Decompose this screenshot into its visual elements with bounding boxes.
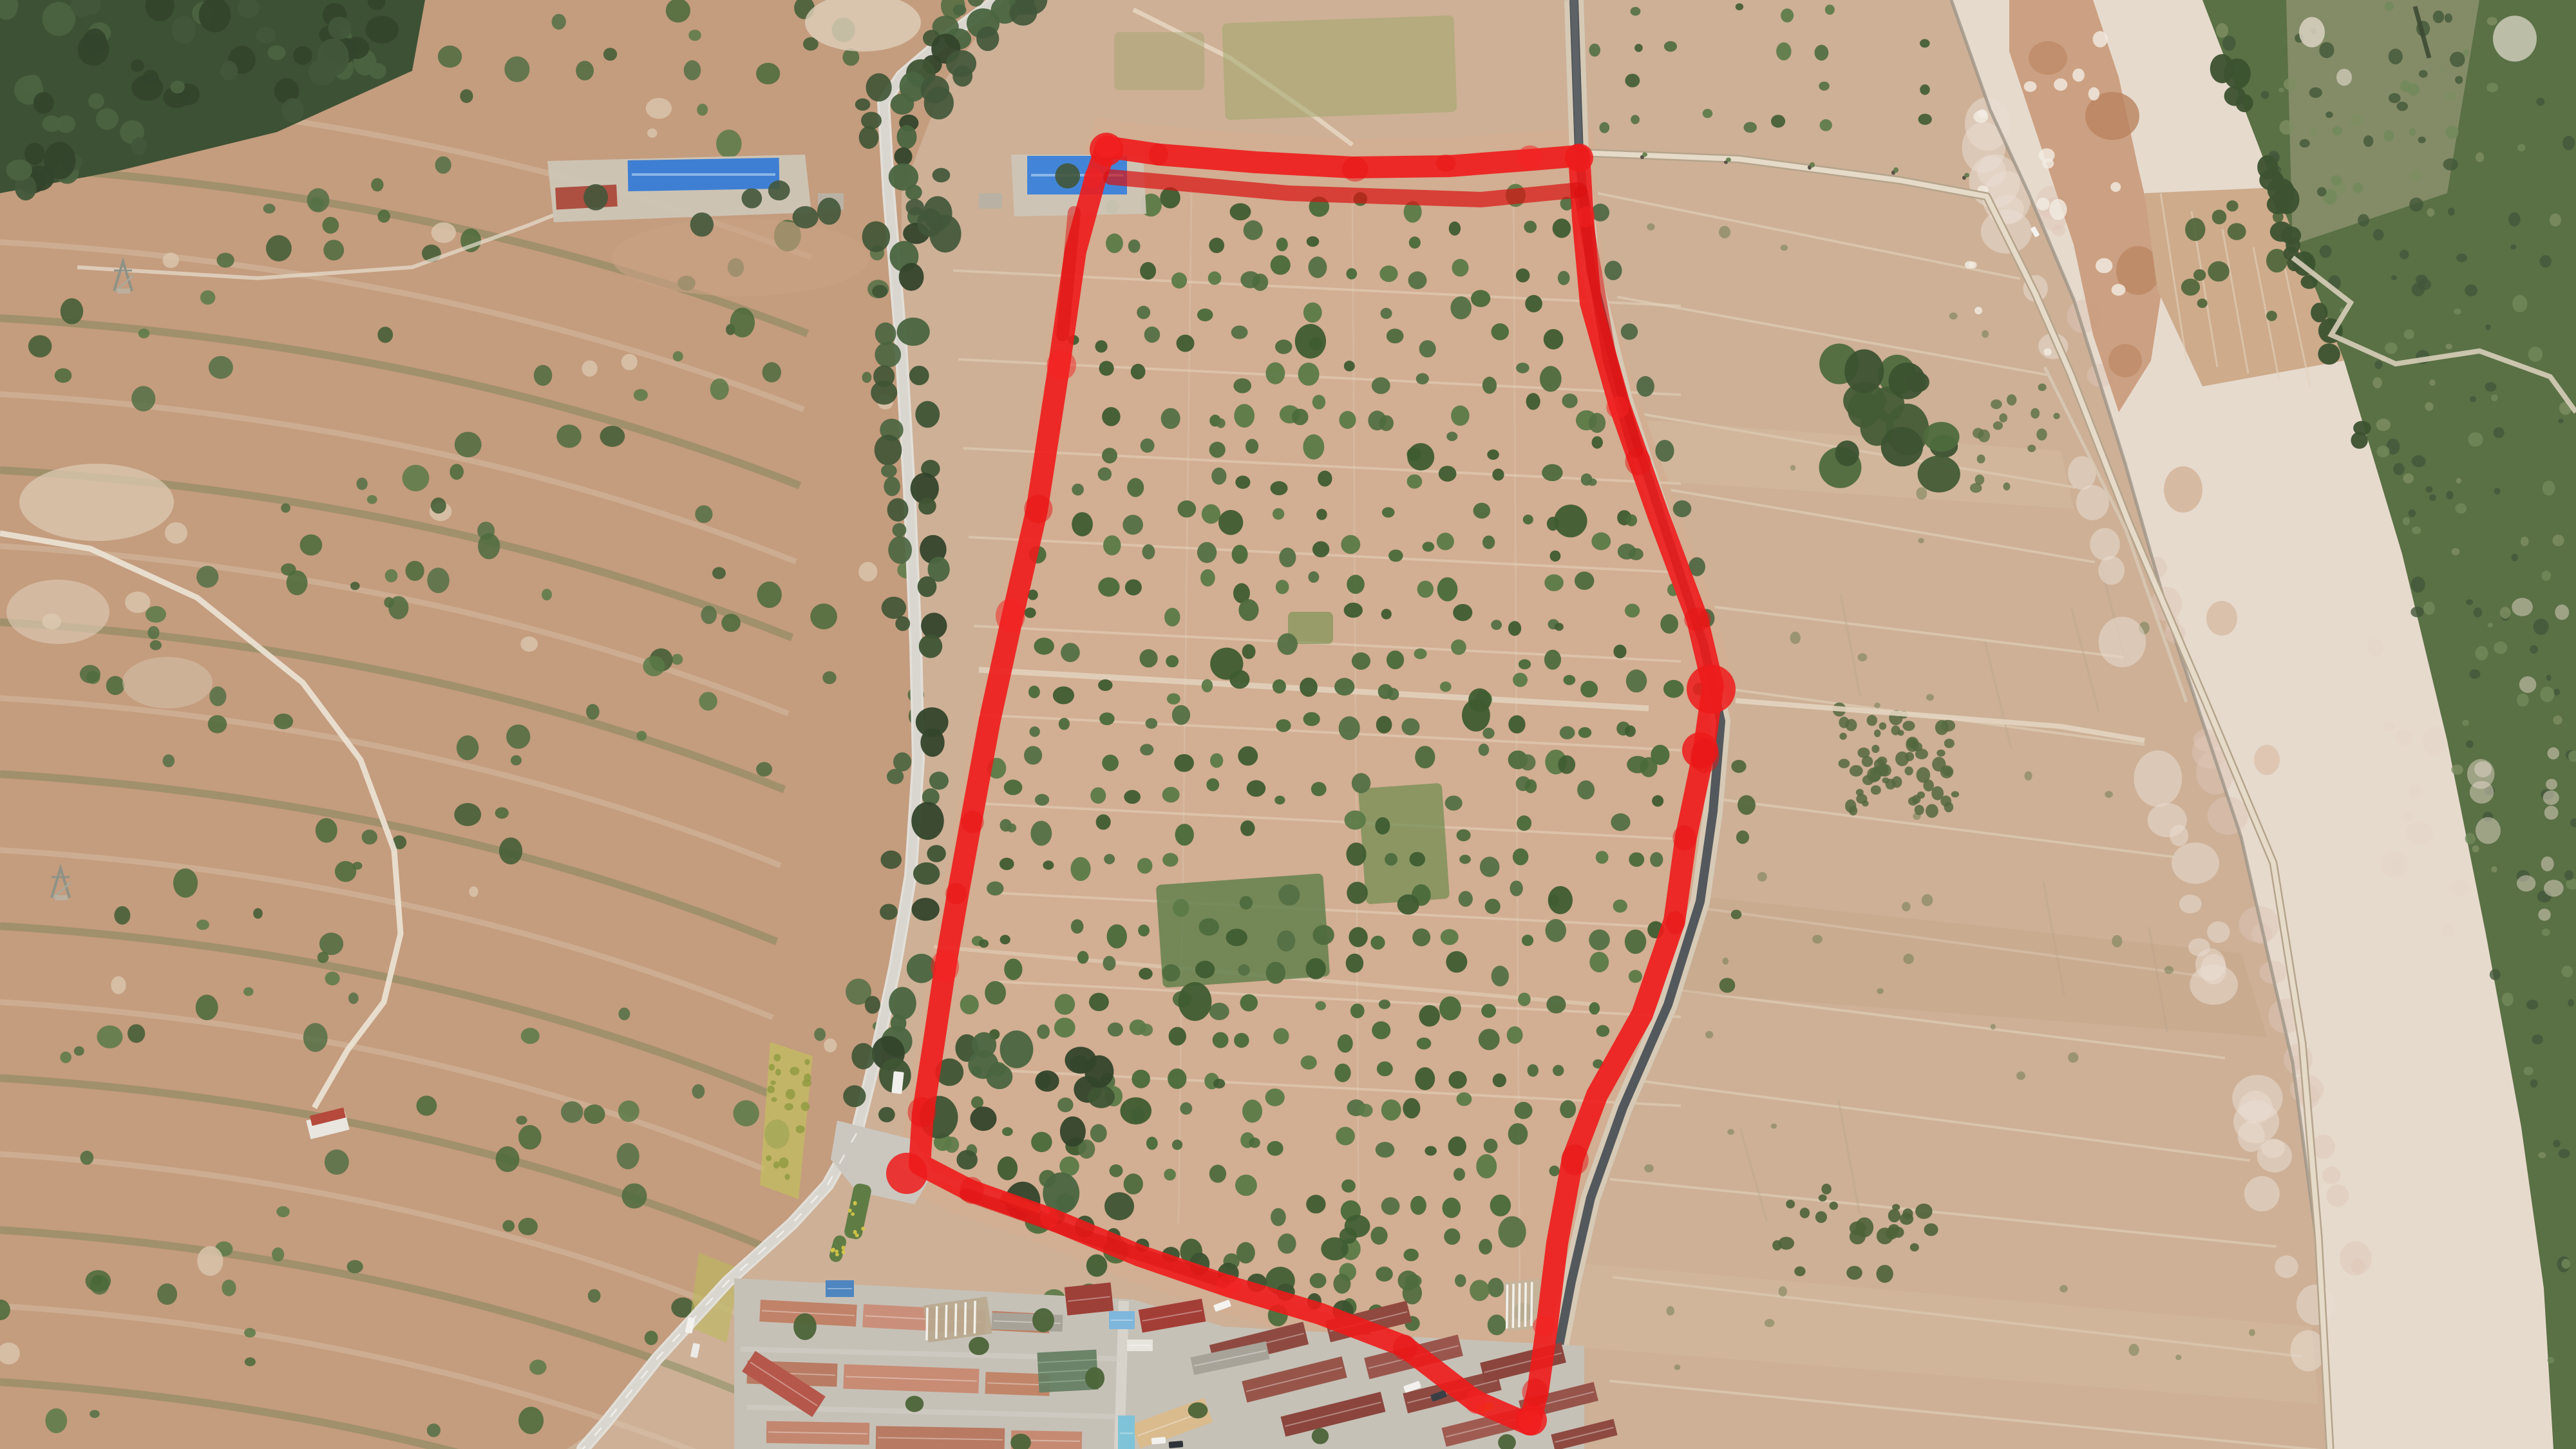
village-roof bbox=[876, 1426, 1005, 1449]
village-roof bbox=[1118, 1416, 1135, 1449]
aerial-photograph bbox=[0, 0, 2576, 1449]
village-roof bbox=[843, 1364, 979, 1393]
dark-car bbox=[1169, 1441, 1184, 1448]
village-roof bbox=[1127, 1340, 1153, 1351]
village-roof bbox=[1065, 1282, 1113, 1315]
village-roof bbox=[826, 1280, 854, 1297]
aerial-photo-stage bbox=[0, 0, 2576, 1449]
village-roof bbox=[766, 1421, 870, 1445]
blue-roof-shed bbox=[628, 158, 780, 191]
outbuilding bbox=[979, 193, 1002, 209]
white-car bbox=[1151, 1437, 1166, 1444]
village-roof bbox=[1109, 1311, 1135, 1329]
